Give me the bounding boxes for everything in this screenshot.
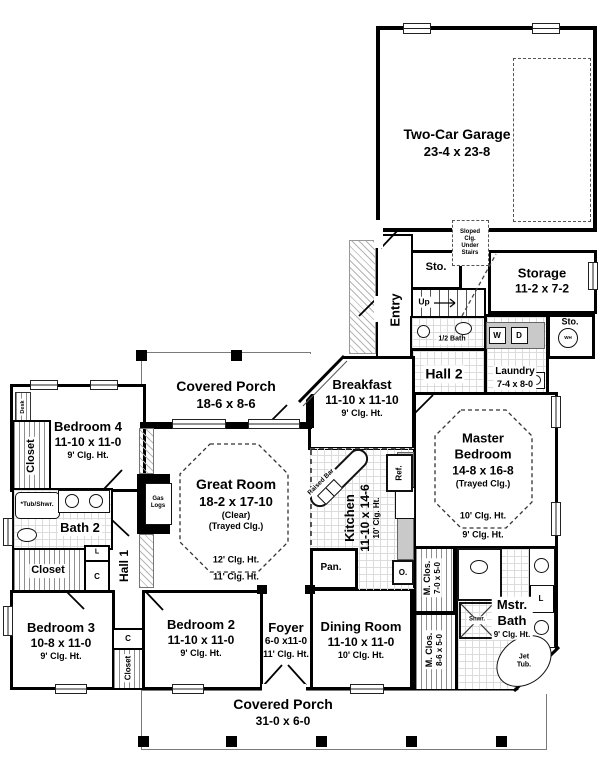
fireplace-wall-upper [139,428,154,474]
great-room-clg2: 11' Clg. Ht. [213,571,259,582]
porch-column [231,350,242,361]
great-room-name: Great Room [196,476,276,494]
bath2-sink-right [89,494,103,508]
fireplace-wall-lower [139,534,154,588]
bedroom3-name: Bedroom 3 [27,620,95,636]
bath2-label: Bath 2 [58,520,102,536]
master-clg1: 10' Clg. Ht. [460,510,506,521]
entry-stoop-steps [349,240,376,354]
window [3,606,13,636]
pantry-label: Pan. [318,562,343,575]
window [55,684,87,694]
mbath-name2: Bath [498,613,527,629]
dining-name: Dining Room [321,619,402,635]
foyer-clg: 11' Clg. Ht. [263,649,309,660]
porch-column [226,736,237,747]
bedroom3-clg: 9' Clg. Ht. [40,651,81,662]
jet-tub-label: Jet Tub. [517,654,531,671]
breakfast-dims: 11-10 x 11-10 [325,393,398,408]
bedroom2-name: Bedroom 2 [167,617,235,633]
dining-clg: 10' Clg. Ht. [338,650,384,661]
hall2-label: Hall 2 [423,365,464,383]
closet-c1-label: C [94,572,100,582]
breakfast-clg: 9' Clg. Ht. [341,408,382,419]
bath2-sink-left [65,494,79,508]
linen1-label: L [95,549,99,558]
window [532,23,560,34]
porch-top-label: Covered Porch 18-6 x 8-6 [176,378,276,412]
bedroom2-dims: 11-10 x 11-0 [168,633,235,648]
mclos1-name: M. Clos. [422,561,433,596]
garage-dims: 23-4 x 23-8 [424,144,491,160]
mbath-toilet-room [457,548,502,601]
oven-label: O. [399,568,407,578]
master-note: (Trayed Clg.) [456,478,511,489]
dining-label: Dining Room 11-10 x 11-0 10' Clg. Ht. [321,619,402,662]
entry-door-opening [374,296,383,322]
tub-shower-label: *Tub/Shwr. [20,501,53,509]
porch-column [496,736,507,747]
porch-top-dims: 18-6 x 8-6 [196,396,255,412]
garage-attic-dashed-outline [513,58,591,222]
master-name: Master Bedroom [433,431,533,464]
laundry-name: Laundry [495,366,534,379]
breakfast-west-wall [306,394,314,428]
closet-bedroom2-label: Closet [124,654,133,682]
mclos2-name: M. Clos. [424,633,435,668]
hall1-label: Hall 1 [117,550,131,582]
gas-logs-label: Gas Logs [151,496,165,510]
water-heater-label: WH [564,335,572,341]
mbath-clg: 9' Clg. Ht. [494,629,531,639]
foyer-opening-post-right [305,585,315,594]
bath2-toilet [17,528,37,542]
half-bath-toilet [455,322,472,335]
porch-column [406,736,417,747]
kitchen-name: Kitchen [342,494,358,542]
laundry-label: Laundry 7-4 x 8-0 [493,366,536,390]
dryer-label: D [516,331,522,341]
master-label: Master Bedroom 14-8 x 16-8 (Trayed Clg.) [433,431,533,490]
window [350,684,384,694]
porch-column [136,350,147,361]
great-room-label: Great Room 18-2 x 17-10 (Clear) (Trayed … [196,476,276,532]
bedroom4-clg: 9' Clg. Ht. [67,450,108,461]
mbath-name1: Mstr. [497,597,527,613]
mclos1-label: M. Clos. 7-0 x 5-0 [422,559,442,598]
covered-porch-bottom [141,690,547,750]
bedroom4-name: Bedroom 4 [54,419,122,435]
french-door [172,419,226,429]
bedroom4-label: Bedroom 4 11-10 x 11-0 9' Clg. Ht. [54,419,122,462]
porch-bottom-name: Covered Porch [233,696,333,714]
mclos2-label: M. Clos. 8-6 x 5-0 [424,631,444,670]
desk-label: Desk [20,398,26,415]
window [30,380,58,390]
window [403,23,431,34]
window [172,684,204,694]
bedroom3-dims: 10-8 x 11-0 [31,636,92,651]
foyer-name: Foyer [268,620,303,636]
half-bath-label: 1/2 Bath [436,336,467,345]
entry-label: Entry [388,293,403,326]
garage-label: Two-Car Garage 23-4 x 23-8 [403,126,510,160]
window [90,380,118,390]
closet-hall-label: Closet [29,564,67,578]
french-door [248,419,300,429]
storage-name: Storage [518,265,566,281]
master-bath-label: Mstr. Bath 9' Clg. Ht. [492,597,533,640]
great-room-note2: (Trayed Clg.) [209,521,264,532]
kitchen-clg: 10' Clg. Ht. [372,497,382,538]
foyer-dims: 6-0 x11-0 [265,636,307,649]
dining-dims: 11-10 x 11-0 [328,635,395,650]
window [551,396,561,428]
kitchen-label: Kitchen 11-10 x 14-6 10' Clg. Ht. [342,484,382,551]
bedroom3-label: Bedroom 3 10-8 x 11-0 9' Clg. Ht. [27,620,95,663]
mclos1-dims: 7-0 x 5-0 [433,562,443,594]
porch-column [316,736,327,747]
closet-c2-label: C [125,634,131,644]
garage-entry-door-opening [374,220,383,248]
storage-label: Storage 11-2 x 7-2 [515,265,569,296]
linen2-label: L [539,594,544,604]
master-clg2: 9' Clg. Ht. [462,529,503,540]
foyer-label: Foyer 6-0 x11-0 11' Clg. Ht. [263,620,309,660]
great-room-clg1: 12' Clg. Ht. [213,554,259,565]
foyer-opening-post-left [257,585,267,594]
mbath-sink-1 [534,558,549,573]
storage-dims: 11-2 x 7-2 [515,282,569,297]
breakfast-name: Breakfast [332,377,391,393]
bedroom4-dims: 11-10 x 11-0 [55,435,122,450]
great-room-dims: 18-2 x 17-10 [199,493,273,509]
window [551,502,561,536]
half-bath-sink [417,325,430,338]
mbath-sink-2 [534,620,549,635]
mclos2-dims: 8-6 x 5-0 [435,634,445,666]
sloped-clg-note: Sloped Clg. Under Stairs [460,229,480,257]
front-door-opening [262,684,306,695]
refrigerator-label: Ref. [395,465,404,480]
up-label: Up [416,297,431,308]
great-room-note1: (Clear) [222,510,251,521]
bedroom2-clg: 9' Clg. Ht. [180,648,221,659]
mbath-toilet [470,560,488,574]
window [588,262,598,290]
porch-top-name: Covered Porch [176,378,276,396]
window [3,518,13,546]
closet-bedroom4-label: Closet [25,437,37,475]
bedroom2-label: Bedroom 2 11-10 x 11-0 9' Clg. Ht. [167,617,235,660]
kitchen-dims: 11-10 x 14-6 [358,484,372,551]
breakfast-label: Breakfast 11-10 x 11-10 9' Clg. Ht. [325,377,398,420]
shower-label: Shwr. [467,616,487,624]
sto-wh-label: Sto. [562,316,579,327]
sto-under-stairs-label: Sto. [426,261,447,275]
master-dims: 14-8 x 16-8 [452,463,513,478]
porch-column [138,736,149,747]
porch-bottom-label: Covered Porch 31-0 x 6-0 [233,696,333,729]
laundry-dims: 7-4 x 8-0 [497,379,533,390]
porch-bottom-dims: 31-0 x 6-0 [256,713,311,728]
washer-label: W [493,331,501,341]
garage-name: Two-Car Garage [403,126,510,144]
floor-plan: Two-Car Garage 23-4 x 23-8 Sloped Clg. U… [0,0,600,777]
